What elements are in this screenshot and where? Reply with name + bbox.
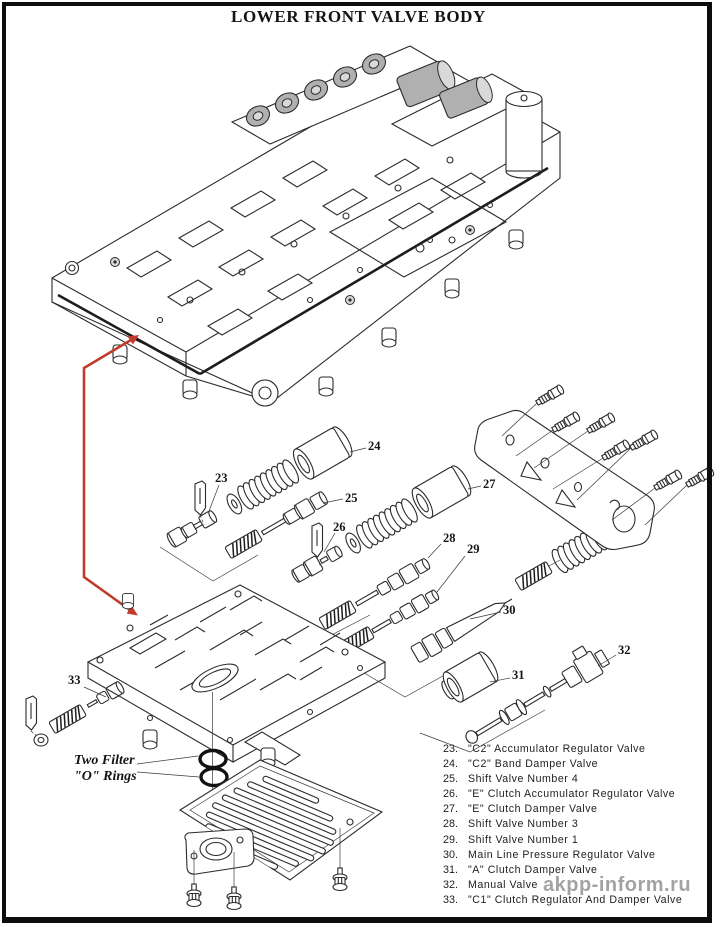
callout-28: 28	[443, 531, 456, 545]
o-ring	[200, 751, 226, 768]
page-title: LOWER FRONT VALVE BODY	[0, 7, 717, 27]
site-watermark: akpp-inform.ru	[543, 874, 691, 897]
callout-25: 25	[345, 491, 358, 505]
callout-32: 32	[618, 643, 631, 657]
oring-label-line2: "O" Rings	[74, 769, 184, 785]
callout-26: 26	[333, 520, 346, 534]
parts-list-row-27: 27."E" Clutch Damper Valve	[443, 802, 711, 817]
valve-train-28	[318, 556, 432, 631]
callout-27: 27	[483, 477, 496, 491]
bolt-retainer-plate	[475, 384, 715, 550]
parts-list-row-26: 26."E" Clutch Accumulator Regulator Valv…	[443, 787, 711, 802]
callout-33: 33	[68, 673, 81, 687]
retainer-clip-26	[312, 523, 323, 557]
oring-label-line1: Two Filter	[74, 753, 184, 769]
two-filter-orings-label: Two Filter "O" Rings	[74, 753, 184, 784]
retainer-clip-23	[195, 481, 206, 515]
parts-list-row-23: 23."C2" Accumulator Regulator Valve	[443, 742, 711, 757]
parts-list-row-28: 28.Shift Valve Number 3	[443, 817, 711, 832]
callout-23: 23	[215, 471, 228, 485]
parts-list-row-29: 29.Shift Valve Number 1	[443, 833, 711, 848]
filter-o-rings	[200, 751, 227, 786]
callout-30: 30	[503, 603, 516, 617]
main-valve-body-assembly	[52, 46, 560, 406]
parts-list-row-30: 30.Main Line Pressure Regulator Valve	[443, 848, 711, 863]
damper-valve-31	[436, 649, 501, 706]
oil-filter	[180, 760, 382, 887]
callout-24: 24	[368, 439, 381, 453]
callout-31: 31	[512, 668, 525, 682]
red-pointer-arrow	[84, 335, 139, 616]
callout-29: 29	[467, 542, 480, 556]
parts-list-row-25: 25.Shift Valve Number 4	[443, 772, 711, 787]
parts-list-row-24: 24."C2" Band Damper Valve	[443, 757, 711, 772]
manual-page: 23 24 25 26 27 28 29 30 31 32 33 LOWER F…	[0, 0, 725, 927]
accumulator-cylinder	[506, 92, 542, 179]
